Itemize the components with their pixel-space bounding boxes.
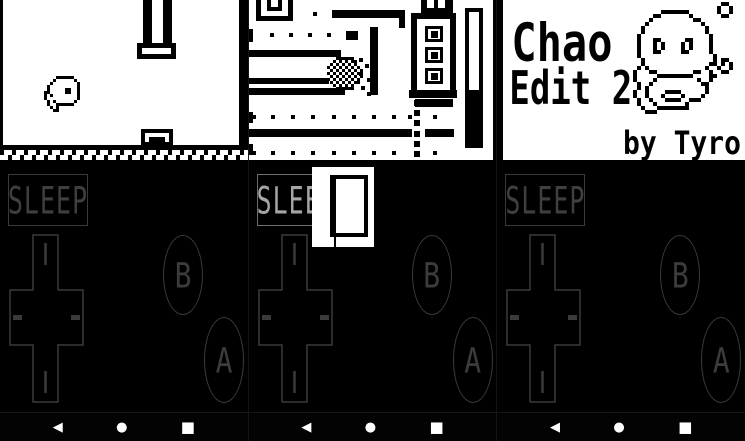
grid-dot: [332, 151, 336, 155]
chao-sprite: [657, 50, 661, 54]
chao-sprite: [701, 94, 705, 98]
emulator-panel-flappy: SLEEP B A ◀ ● ■: [0, 0, 248, 441]
pixel-shape: [249, 88, 345, 95]
chao-sprite: [653, 110, 657, 114]
nav-back-icon[interactable]: ◀: [301, 421, 311, 434]
chao-sprite: [697, 70, 701, 74]
chao-sprite: [709, 78, 713, 82]
game-screen-flappy: [0, 0, 248, 160]
title-credit: by Tyro: [623, 124, 741, 160]
a-button-label: A: [713, 339, 730, 380]
pixel-shape: [143, 0, 152, 44]
pixel-shape: [267, 7, 282, 11]
chao-sprite: [685, 50, 689, 54]
dpad[interactable]: [258, 234, 334, 404]
pixel-shape: [431, 52, 438, 59]
bird-sprite: [50, 94, 53, 97]
android-navbar: ◀ ● ■: [497, 412, 745, 441]
sleep-button-label: SLEEP: [8, 178, 88, 222]
android-navbar: ◀ ● ■: [249, 412, 497, 441]
b-button-label: B: [672, 254, 689, 295]
a-button[interactable]: A: [204, 317, 244, 403]
grid-dot: [392, 115, 396, 119]
pixel-shape: [0, 145, 248, 150]
grid-dot: [433, 115, 437, 119]
pixel-shape: [137, 43, 176, 59]
nav-back-icon[interactable]: ◀: [550, 421, 560, 434]
bird-sprite: [74, 100, 77, 103]
grid-dot: [392, 151, 396, 155]
pixel-shape: [249, 29, 253, 42]
pixel-shape: [367, 78, 371, 82]
chao-sprite: [713, 74, 717, 78]
chao-sprite: [689, 74, 693, 78]
emulator-triptych: SLEEP B A ◀ ● ■ SLEEP: [0, 0, 745, 441]
player-sprite: [357, 81, 360, 84]
bird-sprite: [71, 103, 74, 106]
spade-pixel: [334, 311, 336, 313]
bird-sprite: [53, 79, 56, 82]
grid-dot: [311, 151, 315, 155]
pixel-shape: [163, 0, 172, 44]
grid-dot: [252, 151, 256, 155]
sleep-button[interactable]: SLEEP: [8, 174, 88, 226]
dpad[interactable]: [9, 234, 85, 404]
gamepad-skin: SLEEP B A: [497, 160, 745, 412]
pixel-shape: [414, 131, 420, 137]
chao-sprite: [637, 86, 641, 90]
grid-dot: [433, 151, 437, 155]
pixel-shape: [409, 90, 457, 98]
pixel-shape: [0, 0, 3, 146]
chao-sprite: [689, 46, 693, 50]
grid-dot: [311, 115, 315, 119]
dpad-right-mark: [71, 315, 80, 320]
grid-dot: [372, 115, 376, 119]
pixel-shape: [367, 92, 371, 96]
nav-home-icon[interactable]: ●: [613, 421, 624, 434]
pixel-shape: [361, 86, 365, 90]
chao-sprite: [653, 78, 657, 82]
grid-dot: [332, 115, 336, 119]
a-button[interactable]: A: [701, 317, 741, 403]
title-line-2: Edit 2: [509, 62, 632, 116]
chao-sprite: [697, 98, 701, 102]
chao-sprite: [637, 66, 641, 70]
pixel-shape: [256, 16, 293, 21]
pixel-shape: [431, 31, 438, 38]
grid-dot: [271, 115, 275, 119]
pixel-shape: [427, 0, 434, 8]
grid-dot: [291, 115, 295, 119]
pixel-shape: [332, 10, 405, 18]
pixel-shape: [414, 120, 420, 126]
spade-card: [330, 175, 368, 237]
spade-icon: [334, 179, 364, 233]
a-button-label: A: [464, 339, 481, 380]
dpad[interactable]: [506, 234, 582, 404]
pixel-shape: [421, 0, 453, 14]
pixel-shape: [415, 99, 453, 107]
nav-recents-icon[interactable]: ■: [181, 420, 195, 435]
player-sprite: [351, 87, 354, 90]
nav-recents-icon[interactable]: ■: [678, 420, 692, 435]
chao-sprite: [649, 18, 653, 22]
b-button-label: B: [423, 254, 440, 295]
chao-sprite: [729, 10, 733, 14]
emulator-panel-maze: SLEEP B A ◀ ● ■: [248, 0, 497, 441]
pixel-shape: [359, 58, 363, 62]
chao-sprite: [725, 14, 729, 18]
chao-sprite: [729, 66, 733, 70]
pixel-shape: [365, 64, 369, 68]
pixel-shape: [249, 129, 412, 137]
gamepad-skin: SLEEP B A: [249, 160, 497, 412]
a-button[interactable]: A: [453, 317, 493, 403]
chao-sprite: [725, 70, 729, 74]
android-navbar: ◀ ● ■: [0, 412, 248, 441]
grid-dot: [289, 33, 293, 37]
grid-dot: [327, 33, 331, 37]
bird-sprite: [56, 109, 59, 112]
dpad-left-mark: [13, 315, 22, 320]
gamepad-skin: SLEEP B A: [0, 160, 248, 412]
pixel-shape: [497, 0, 503, 160]
grid-dot: [352, 115, 356, 119]
chao-sprite: [661, 46, 665, 50]
pixel-shape: [149, 137, 165, 142]
player-sprite: [360, 75, 363, 78]
pixel-shape: [370, 27, 378, 95]
dpad-left-mark: [262, 315, 271, 320]
grid-dot: [308, 33, 312, 37]
grid-dot: [352, 151, 356, 155]
chao-sprite: [657, 14, 661, 18]
emulator-panel-title: Chao Edit 2 by Tyro SLEEP B A ◀: [496, 0, 745, 441]
bird-sprite: [77, 97, 80, 100]
dpad-right-mark: [568, 315, 577, 320]
pixel-shape: [249, 78, 329, 84]
ground-pattern: [0, 150, 248, 160]
chao-sprite: [649, 82, 653, 86]
grid-dot: [271, 151, 275, 155]
grid-dot: [252, 115, 256, 119]
pixel-shape: [469, 90, 479, 144]
b-button[interactable]: B: [412, 235, 452, 315]
chao-sprite: [685, 106, 689, 110]
pixel-shape: [431, 73, 438, 80]
player-sprite: [360, 69, 363, 72]
bird-sprite: [68, 91, 71, 94]
a-button-label: A: [216, 339, 233, 380]
pixel-shape: [438, 0, 445, 8]
grid-dot: [270, 33, 274, 37]
grid-dot: [291, 151, 295, 155]
pixel-shape: [239, 0, 248, 146]
game-screen-maze: [249, 0, 497, 160]
nav-home-icon[interactable]: ●: [116, 421, 127, 434]
pixel-shape: [414, 151, 420, 157]
chao-sprite: [705, 90, 709, 94]
chao-sprite: [681, 94, 685, 98]
pixel-shape: [414, 141, 420, 147]
b-button[interactable]: B: [163, 235, 203, 315]
grid-dot: [372, 151, 376, 155]
pixel-shape: [346, 31, 358, 40]
chao-sprite: [721, 62, 725, 66]
chao-sprite: [641, 30, 645, 34]
dpad-left-mark: [510, 315, 519, 320]
pixel-shape: [425, 129, 454, 137]
chao-sprite: [645, 22, 649, 26]
sleep-button-label: SLEEP: [505, 178, 585, 222]
nav-home-icon[interactable]: ●: [365, 421, 376, 434]
pixel-shape: [399, 18, 405, 28]
bird-sprite: [50, 82, 53, 85]
pixel-shape: [414, 110, 420, 116]
b-button-label: B: [175, 254, 192, 295]
pixel-shape: [313, 12, 317, 16]
pixel-shape: [249, 50, 341, 57]
card-popup: [312, 167, 374, 247]
sleep-button[interactable]: SLEEP: [505, 174, 585, 226]
dpad-right-mark: [320, 315, 329, 320]
grid-dot: [408, 115, 412, 119]
game-screen-title: Chao Edit 2 by Tyro: [497, 0, 745, 160]
nav-back-icon[interactable]: ◀: [53, 421, 63, 434]
b-button[interactable]: B: [660, 235, 700, 315]
nav-recents-icon[interactable]: ■: [429, 420, 443, 435]
chao-sprite: [677, 98, 681, 102]
